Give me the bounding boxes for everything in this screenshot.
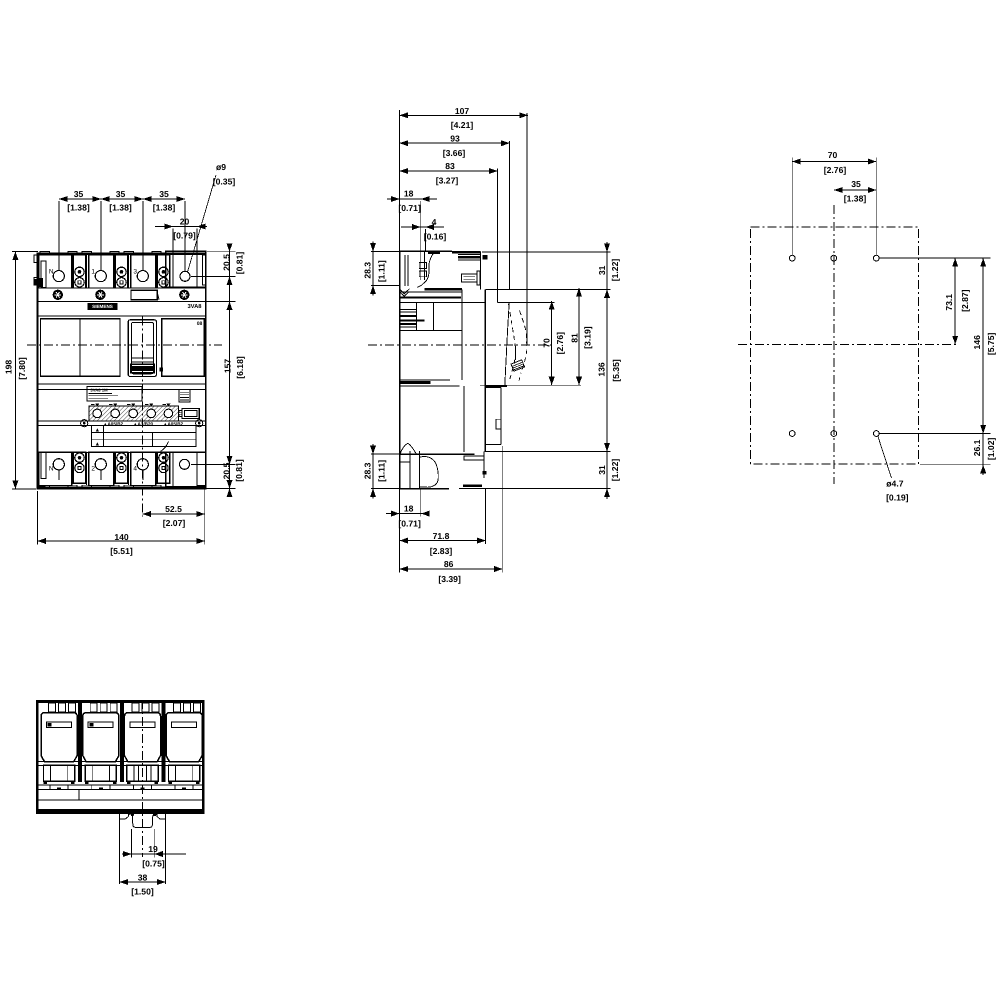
svg-text:31: 31 [597, 465, 607, 475]
svg-text:[3.66]: [3.66] [443, 148, 466, 158]
svg-text:[3.19]: [3.19] [583, 326, 593, 349]
svg-text:[3.27]: [3.27] [436, 176, 459, 186]
svg-text:3: 3 [133, 269, 137, 276]
svg-text:[2.76]: [2.76] [555, 332, 565, 355]
svg-text:4: 4 [133, 466, 137, 473]
svg-text:18: 18 [404, 504, 414, 514]
svg-text:3VA8 1M: 3VA8 1M [90, 387, 108, 392]
svg-text:▲: ▲ [95, 441, 100, 447]
svg-text:[1.22]: [1.22] [610, 459, 620, 482]
svg-text:▲: ▲ [95, 428, 100, 434]
svg-text:[2.76]: [2.76] [824, 165, 847, 175]
svg-text:[7.80]: [7.80] [17, 357, 27, 380]
svg-text:35: 35 [116, 189, 126, 199]
svg-text:3VA8: 3VA8 [187, 303, 202, 310]
svg-text:70: 70 [541, 338, 551, 348]
svg-text:26.1: 26.1 [972, 439, 982, 456]
svg-text:[0.81]: [0.81] [235, 252, 245, 275]
svg-text:[1.38]: [1.38] [67, 203, 90, 213]
svg-text:81: 81 [570, 333, 580, 343]
svg-text:[1.38]: [1.38] [109, 203, 132, 213]
svg-text:86: 86 [444, 559, 454, 569]
svg-text:[3.39]: [3.39] [438, 574, 461, 584]
svg-text:35: 35 [851, 179, 861, 189]
svg-text:ø4.7: ø4.7 [886, 479, 903, 489]
svg-text:[0.75]: [0.75] [142, 859, 165, 869]
svg-text:136: 136 [597, 362, 607, 377]
svg-text:[1.50]: [1.50] [131, 887, 154, 897]
svg-text:[1.22]: [1.22] [610, 259, 620, 282]
svg-text:[1.11]: [1.11] [377, 260, 387, 282]
svg-text:[1.38]: [1.38] [153, 203, 176, 213]
svg-text:38: 38 [138, 873, 148, 883]
svg-text:[5.35]: [5.35] [611, 359, 621, 382]
svg-text:140: 140 [114, 532, 129, 542]
svg-text:[2.83]: [2.83] [430, 546, 453, 556]
svg-text:[1.11]: [1.11] [377, 460, 387, 482]
svg-text:18: 18 [404, 189, 414, 199]
svg-text:28.3: 28.3 [363, 262, 373, 279]
svg-text:[2.87]: [2.87] [960, 289, 970, 312]
svg-text:35: 35 [159, 189, 169, 199]
svg-text:[0.79]: [0.79] [173, 231, 196, 241]
svg-text:52.5: 52.5 [165, 504, 182, 514]
svg-text:198: 198 [4, 360, 14, 375]
svg-text:93: 93 [450, 134, 460, 144]
svg-text:19: 19 [148, 844, 158, 854]
svg-text:20.5: 20.5 [222, 462, 232, 479]
svg-text:1: 1 [91, 269, 95, 276]
svg-text:71.8: 71.8 [433, 531, 450, 541]
svg-text:[0.71]: [0.71] [398, 203, 421, 213]
svg-text:[0.35]: [0.35] [213, 177, 236, 187]
svg-text:[5.51]: [5.51] [110, 546, 133, 556]
svg-text:ø9: ø9 [216, 162, 226, 172]
svg-text:[2.07]: [2.07] [163, 518, 186, 528]
svg-text:[1.38]: [1.38] [844, 194, 867, 204]
svg-text:08: 08 [197, 321, 203, 327]
svg-text:28.3: 28.3 [363, 462, 373, 479]
svg-text:83: 83 [445, 161, 455, 171]
svg-text:4: 4 [432, 217, 437, 227]
svg-text:SIEMENS: SIEMENS [92, 304, 113, 309]
svg-text:2: 2 [91, 466, 95, 473]
svg-text:[0.19]: [0.19] [886, 492, 909, 502]
svg-text:146: 146 [972, 335, 982, 350]
svg-text:157: 157 [223, 359, 233, 374]
svg-text:[5.75]: [5.75] [986, 333, 996, 356]
svg-text:[0.71]: [0.71] [398, 518, 421, 528]
svg-text:[0.81]: [0.81] [234, 459, 244, 482]
svg-text:[4.21]: [4.21] [451, 120, 474, 130]
svg-text:107: 107 [455, 106, 470, 116]
svg-text:[0.16]: [0.16] [424, 231, 447, 241]
svg-text:[6.18]: [6.18] [235, 356, 245, 379]
svg-text:[1.02]: [1.02] [986, 438, 996, 461]
svg-text:31: 31 [597, 265, 607, 275]
svg-text:20.5: 20.5 [222, 254, 232, 271]
svg-text:73.1: 73.1 [944, 294, 954, 311]
svg-text:70: 70 [828, 150, 838, 160]
svg-text:35: 35 [74, 189, 84, 199]
svg-text:20: 20 [180, 217, 190, 227]
